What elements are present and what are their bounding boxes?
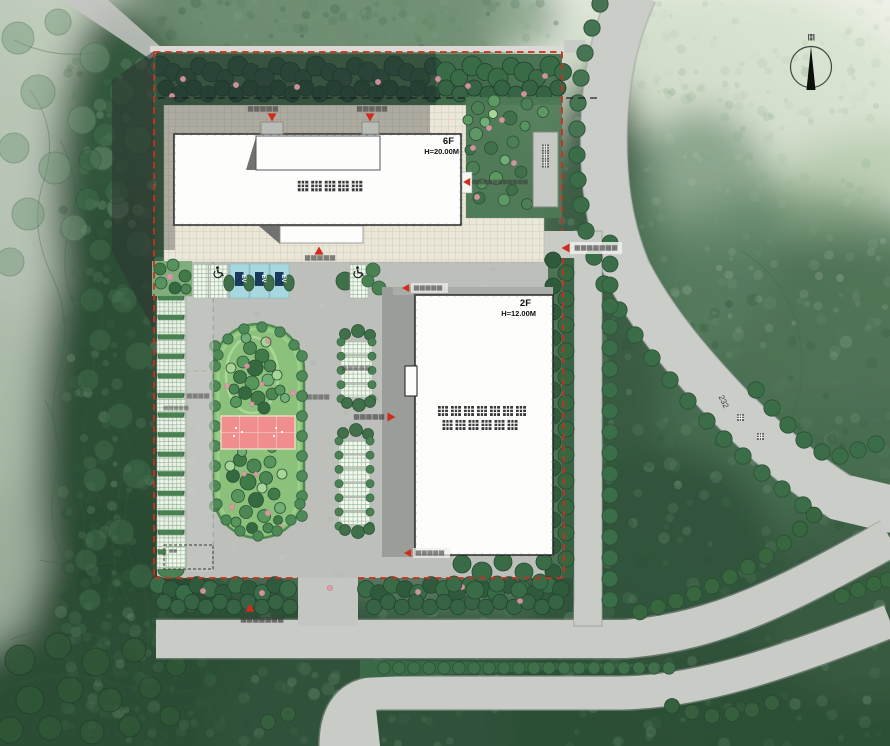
svg-text:EV: EV bbox=[260, 275, 266, 283]
svg-text:2F: 2F bbox=[520, 298, 531, 309]
svg-text:EV: EV bbox=[240, 275, 246, 283]
svg-text:EV: EV bbox=[280, 275, 286, 283]
svg-text:6F: 6F bbox=[443, 136, 454, 147]
svg-text:H=12.00M: H=12.00M bbox=[501, 309, 536, 318]
svg-text:H=20.00M: H=20.00M bbox=[424, 147, 459, 156]
